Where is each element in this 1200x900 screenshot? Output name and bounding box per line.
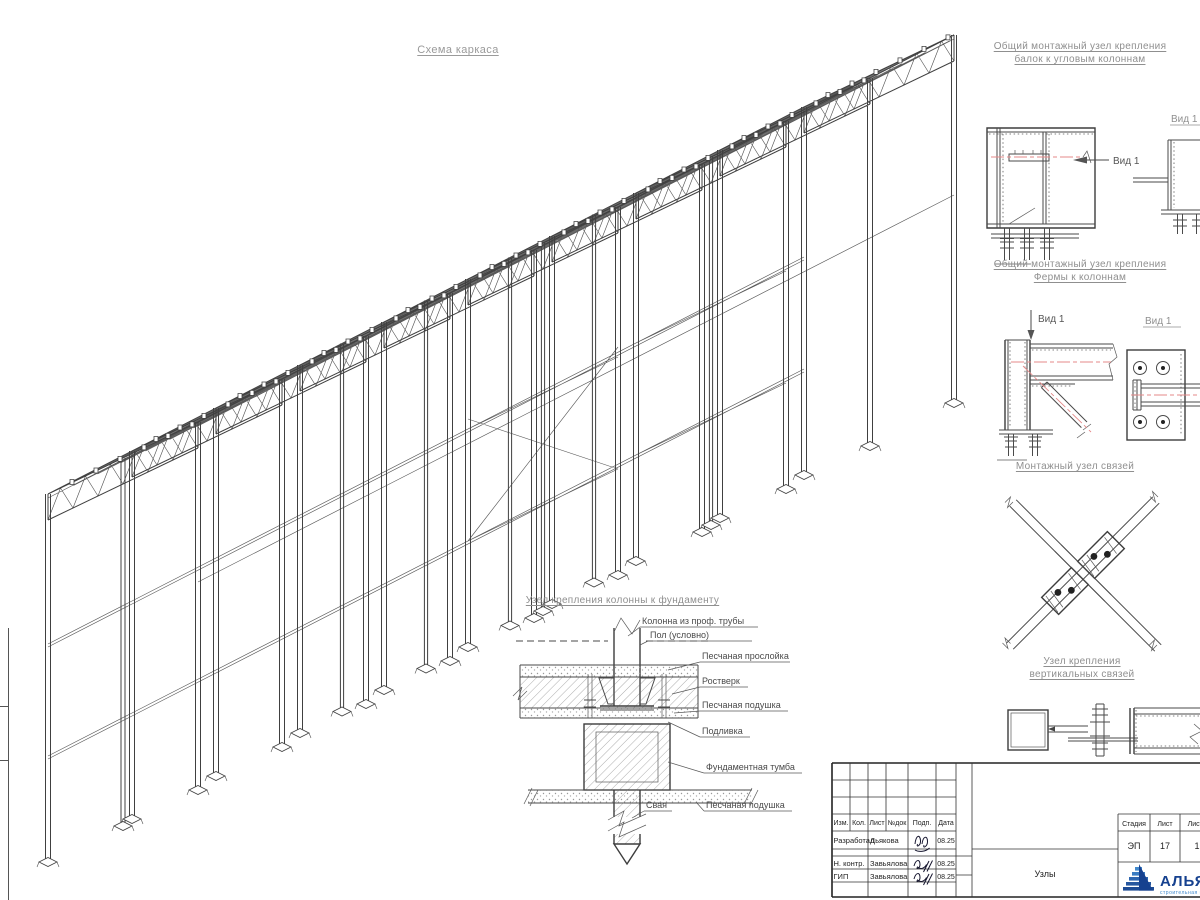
tb-doc-name: Узлы bbox=[1035, 869, 1056, 879]
detail-bracing-heading-line: Монтажный узел связей bbox=[975, 460, 1175, 473]
tb-stage-label: Стадия bbox=[1122, 821, 1146, 828]
label-pedestal: Фундаментная тумба bbox=[706, 762, 795, 772]
detail-corner-beam-heading: Общий монтажный узел крепления балок к у… bbox=[975, 40, 1185, 66]
detail-truss-column-heading: Общий монтажный узел крепления Фермы к к… bbox=[975, 258, 1185, 284]
label-grillage: Ростверк bbox=[702, 676, 740, 686]
tb-name-developer: Дьякова bbox=[870, 836, 899, 845]
view-arrow bbox=[1073, 157, 1087, 164]
detail-corner-beam-heading-line1: Общий монтажный узел крепления bbox=[975, 40, 1185, 53]
detail-corner-beam-drawing: Вид 1 Вид 1 bbox=[975, 106, 1200, 258]
tb-col-ndok: №док bbox=[888, 820, 907, 827]
foundation-detail-drawing: Колонна из проф. трубы Пол (условно) Пес… bbox=[500, 612, 810, 870]
detail-truss-column-heading-line2: Фермы к колоннам bbox=[975, 271, 1185, 284]
tb-date-developer: 08.25 bbox=[937, 838, 955, 845]
detail-vertical-bracing-heading: Узел крепления вертикальных связей bbox=[1002, 655, 1162, 681]
label-sand-cushion: Песчаная подушка bbox=[702, 700, 781, 710]
tb-col-data: Дата bbox=[938, 820, 954, 827]
tb-company-sub: строительная компания bbox=[1160, 890, 1200, 896]
tb-stage-value: ЭП bbox=[1128, 841, 1141, 851]
label-floor: Пол (условно) bbox=[650, 630, 709, 640]
detail-bracing-drawing bbox=[988, 478, 1193, 663]
tb-sheet-label: Лист bbox=[1157, 821, 1173, 828]
view-left-label: Вид 1 bbox=[1038, 314, 1065, 325]
foundation-heading-line: Узел крепления колонны к фундаменту bbox=[515, 594, 730, 607]
tb-col-kol: Кол. bbox=[852, 820, 866, 827]
view2-label: Вид 1 bbox=[1171, 114, 1198, 125]
anchor-bolts bbox=[1000, 228, 1054, 260]
drawing-sheet: Схема каркаса Общий монтажный узел крепл… bbox=[0, 0, 1200, 900]
tb-sheets-value: 1 bbox=[1194, 841, 1199, 851]
tb-sheet-value: 17 bbox=[1160, 841, 1170, 851]
detail-vertical-bracing-heading-line2: вертикальных связей bbox=[1002, 668, 1162, 681]
title-block: Изм. Кол. Лист №док Подп. Дата Разработа… bbox=[820, 756, 1200, 900]
label-grout: Подливка bbox=[702, 726, 743, 736]
bracing-gusset-lower bbox=[1042, 568, 1089, 615]
alliance-logo-icon bbox=[1123, 864, 1154, 891]
tb-role-ncontr: Н. контр. bbox=[834, 859, 865, 868]
label-sand-layer: Песчаная прослойка bbox=[702, 651, 789, 661]
bracing-gusset-upper bbox=[1078, 532, 1125, 579]
detail-truss-column-heading-line1: Общий монтажный узел крепления bbox=[975, 258, 1185, 271]
tb-company: АЛЬЯНС bbox=[1160, 873, 1200, 890]
tb-col-podp: Подп. bbox=[913, 820, 932, 827]
view-arrow-down bbox=[1028, 330, 1035, 340]
signature-ncontr bbox=[914, 861, 933, 873]
detail-corner-beam-heading-line2: балок к угловым колоннам bbox=[975, 53, 1185, 66]
main-title: Схема каркаса bbox=[390, 44, 526, 56]
view1-label: Вид 1 bbox=[1113, 156, 1140, 167]
tb-role-gip: ГИП bbox=[834, 872, 849, 881]
tb-name-gip: Завьялова bbox=[870, 872, 908, 881]
label-column: Колонна из проф. трубы bbox=[642, 616, 744, 626]
tb-date-gip: 08.25 bbox=[937, 874, 955, 881]
detail-bracing-heading: Монтажный узел связей bbox=[975, 460, 1175, 473]
tb-sheets-label: Листов bbox=[1188, 821, 1200, 828]
tb-col-izm: Изм. bbox=[834, 820, 849, 827]
foundation-heading: Узел крепления колонны к фундаменту bbox=[515, 594, 730, 607]
view-right-label: Вид 1 bbox=[1145, 316, 1172, 327]
tb-role-developer: Разработал bbox=[834, 836, 875, 845]
splice-bolt bbox=[1090, 704, 1110, 756]
tb-date-ncontr: 08.25 bbox=[937, 861, 955, 868]
label-pile: Свая bbox=[646, 800, 667, 810]
label-sand-cushion2: Песчаная подушка bbox=[706, 800, 785, 810]
tb-col-list: Лист bbox=[869, 820, 885, 827]
detail-truss-column-drawing: Вид 1 Вид 1 bbox=[975, 298, 1200, 460]
detail-vertical-bracing-heading-line1: Узел крепления bbox=[1002, 655, 1162, 668]
signature-gip bbox=[914, 874, 933, 886]
tb-name-ncontr: Завьялова bbox=[870, 859, 908, 868]
